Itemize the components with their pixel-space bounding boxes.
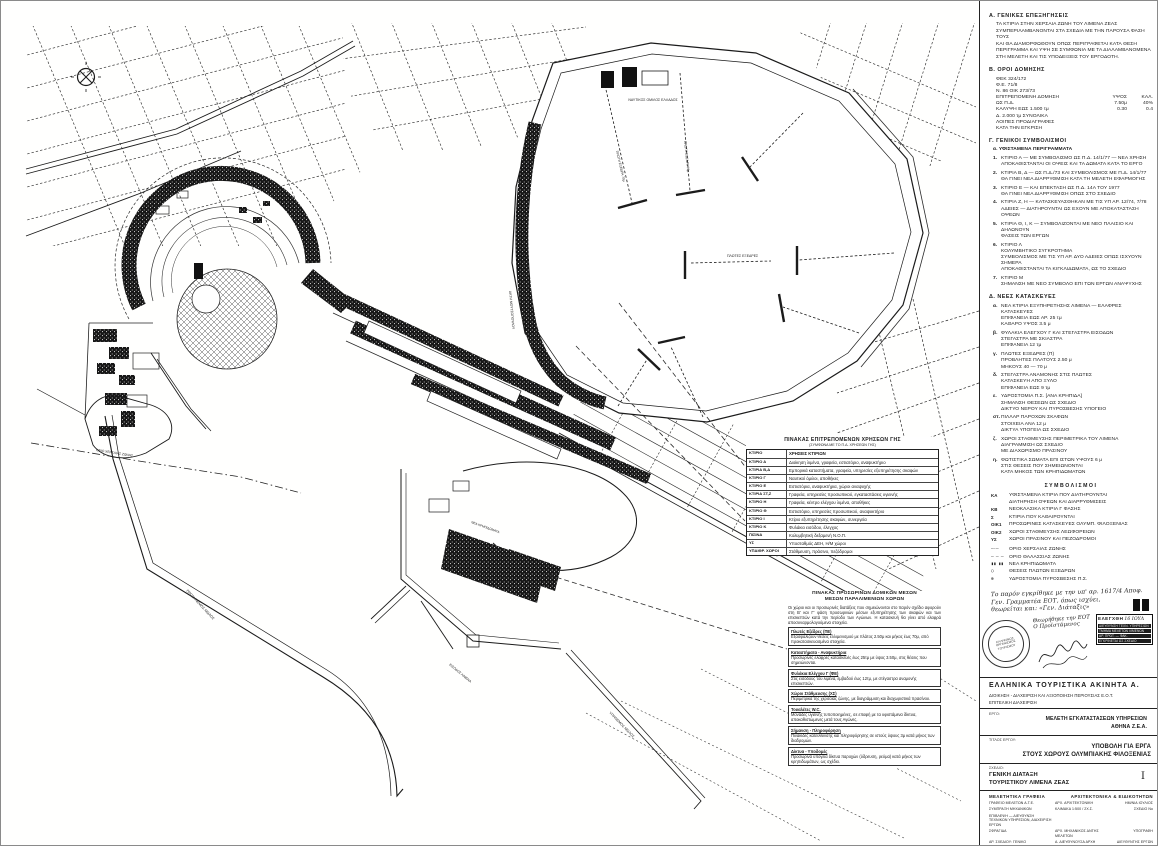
- section-d-heading: Δ. ΝΕΕΣ ΚΑΤΑΣΚΕΥΕΣ: [989, 294, 1153, 301]
- legend-entry: ΚΒ ΝΕΟΚΛΑΣΙΚΑ ΚΤΙΡΙΑ Γ ΦΑΣΗΣ: [991, 507, 1153, 513]
- legend-code: Σ: [991, 515, 1009, 521]
- numbered-note: 7. ΚΤΙΡΙΟ Μ ΣΗΜΑΝΣΗ ΜΕ ΝΕΟ ΣΥΜΒΟΛΟ ΕΠΙ Τ…: [993, 276, 1153, 288]
- firm-col-2: Α. ΔΙΕΥΘΥΝΟΥΣΑ ΑΡΧΗ: [1055, 840, 1110, 845]
- table-row: ΚΤΙΡΙΟ Ε Εστιατόρια, αναψυκτήρια, χώροι …: [747, 482, 938, 490]
- notes-and-titleblock-panel: Α. ΓΕΝΙΚΕΣ ΕΠΕΞΗΓΗΣΕΙΣ ΤΑ ΚΤΙΡΙΑ ΣΤΗΝ ΧΕ…: [979, 1, 1158, 846]
- numbered-note: 2. ΚΤΙΡΙΑ Β, Δ — ΩΣ Π.Δ./73 ΚΑΙ ΣΥΜΒΟΛΙΣ…: [993, 171, 1153, 183]
- note-letter: α.: [993, 304, 1001, 316]
- legend-entry: Σ ΚΤΙΡΙΑ ΠΟΥ ΚΑΘΑΙΡΟΥΝΤΑΙ: [991, 515, 1153, 521]
- lettered-note: στ. ΠΙΛΛΑΡ ΠΑΡΟΧΩΝ ΣΚΑΦΩΝ ΣΤΟΙΧΕΙΑ ΑΝΑ 1…: [993, 415, 1153, 434]
- legend-entry: ΟΙΚ1 ΠΡΟΣΩΡΙΝΕΣ ΚΑΤΑΣΚΕΥΕΣ ΟΛΥΜΠ. ΦΙΛΟΞΕ…: [991, 522, 1153, 528]
- legend-entry: ΥΣ ΧΩΡΟΙ ΠΡΑΣΙΝΟΥ ΚΑΙ ΠΕΖΟΔΡΟΜΟΙ: [991, 537, 1153, 543]
- firm-col-1: ΑΡ. ΣΧΕΔΙΟΥ: ΓΕΝΙΚΟ: [989, 840, 1055, 845]
- building-code: ΚΤΙΡΙΟ Κ: [747, 524, 787, 531]
- legend-entry: ΚΑ ΥΦΙΣΤΑΜΕΝΑ ΚΤΙΡΙΑ ΠΟΥ ΔΙΑΤΗΡΟΥΝΤΑΙ: [991, 493, 1153, 499]
- stamp-row: ΕΓΚΡΙΝΕΤΑΙ ΩΣ ΣΧΕΔΙΟ: [1098, 639, 1151, 643]
- crosshatched-plaza: [177, 269, 277, 369]
- table-row: ΠΙΣΙΝΑ Κολυμβητική δεξαμενή Ν.Ο.Π.: [747, 531, 938, 539]
- small-marina-cove: [371, 462, 637, 649]
- temp-section-body: Προσωρινές ελαφρές κατασκευές έως 25τμ μ…: [791, 655, 938, 665]
- note-number: 2.: [993, 171, 1001, 177]
- note-letter: γ.: [993, 352, 1001, 358]
- firm-col-1: ΣΥΜΠΡΑΞΗ ΜΗΧΑΝΙΚΩΝ: [989, 807, 1055, 812]
- terms-value-2: [1127, 126, 1153, 132]
- map-label: ΑΚΤΗ ΜΟΥΤΣΟΠΟΥΛΟΥ: [508, 291, 515, 330]
- legend-description: ΚΤΙΡΙΑ ΠΟΥ ΚΑΘΑΙΡΟΥΝΤΑΙ: [1009, 515, 1153, 521]
- map-label: ΝΕΑ ΚΡΗΠΙΔΩΜΑΤΑ: [471, 520, 501, 534]
- building-use: Υποσταθμός ΔΕΗ, Η/Μ χώροι: [787, 540, 938, 547]
- building-use: Φυλάκιο εισόδου, έλεγχος: [787, 524, 938, 531]
- col-header-building: ΚΤΙΡΙΟ: [747, 450, 787, 457]
- building-use: Εμπορικά καταστήματα, γραφεία, υπηρεσίες…: [787, 467, 938, 474]
- note-text: ΠΙΛΛΑΡ ΠΑΡΟΧΩΝ ΣΚΑΦΩΝ: [1001, 415, 1068, 421]
- note-text: ΚΤΙΡΙΟ Α — ΜΕ ΣΥΜΒΟΛΙΣΜΟ ΩΣ Π.Δ. 14/1/77…: [1001, 156, 1146, 162]
- building-code: ΚΤΙΡΙΟ Η: [747, 499, 787, 506]
- temp-section-body: Εξασφαλίζουν θέσεις ελλιμενισμού με πλάτ…: [791, 634, 938, 644]
- legend-description: ΝΕΑ ΚΡΗΠΙΔΩΜΑΤΑ: [1009, 562, 1153, 568]
- legend-code: ΚΑ: [991, 493, 1009, 499]
- table-row: ΚΤΙΡΙΟ Κ Φυλάκιο εισόδου, έλεγχος: [747, 523, 938, 531]
- firm-col-3: ΔΙΕΥΘΥΝΤΗΣ ΕΡΓΩΝ: [1110, 840, 1153, 845]
- building-terms-rows: ΦΕΚ 324/172 Φ.Ε. 71/8 Ν. 86 ΟΙΚ 273/73 Ε…: [989, 77, 1153, 133]
- legend-description: ΔΙΑΤΗΡΗΣΗ ΟΨΕΩΝ ΚΑΙ ΔΙΑΡΡΥΘΜΙΣΕΙΣ: [1009, 500, 1153, 506]
- legend-symbol: ⊕: [991, 577, 1009, 583]
- legend-entry: ▮▮ ▮▮ ΝΕΑ ΚΡΗΠΙΔΩΜΑΤΑ: [991, 562, 1153, 568]
- numbered-note: 3. ΚΤΙΡΙΟ Ε — ΚΑΙ ΕΠΕΚΤΑΣΗ ΩΣ Π.Δ. 14Α Τ…: [993, 186, 1153, 198]
- table-row: ΚΤΙΡΙΟ Η Γραφεία, κέντρο ελέγχου λιμένα,…: [747, 498, 938, 506]
- legend-description: ΥΔΡΟΣΤΟΜΙΑ ΠΥΡΟΣΒΕΣΗΣ Π.Σ.: [1009, 577, 1153, 583]
- firms-heading-left: ΜΕΛΕΤΗΤΙΚΑ ΓΡΑΦΕΙΑ: [989, 794, 1045, 800]
- table-row: ΚΤΙΡΙΟ Γ Ναυτικοί όμιλοι, αποθήκες: [747, 474, 938, 482]
- note-text: ΥΔΡΟΣΤΟΜΙΑ Π.Σ. [ΑΝΑ ΚΡΗΠΙΔΑ]: [1001, 394, 1082, 400]
- temp-section: Τουαλέτες W.C. Μονάδες υγιεινής τυποποιη…: [788, 705, 941, 724]
- table-row: ΚΤΙΡΙΑ ΣΤ,Ζ Γραφεία, υπηρεσίες προσωπικο…: [747, 490, 938, 498]
- note-text: ΚΤΙΡΙΑ Β, Δ — ΩΣ Π.Δ./73 ΚΑΙ ΣΥΜΒΟΛΙΣΜΟΣ…: [1001, 171, 1146, 177]
- drawing-title: ΓΕΝΙΚΗ ΔΙΑΤΑΞΗ ΤΟΥΡΙΣΤΙΚΟΥ ΛΙΜΕΝΑ ΖΕΑΣ: [989, 771, 1141, 788]
- project-title-line2: ΣΤΟΥΣ ΧΩΡΟΥΣ ΟΛΥΜΠΙΑΚΗΣ ΦΙΛΟΞΕΝΙΑΣ: [989, 751, 1153, 759]
- legend-code: ΟΙΚ2: [991, 530, 1009, 536]
- building-use: Εστιατόρια, αναψυκτήρια, χώροι αναψυχής: [787, 483, 938, 490]
- legend-entry: ⊕ ΥΔΡΟΣΤΟΜΙΑ ΠΥΡΟΣΒΕΣΗΣ Π.Σ.: [991, 577, 1153, 583]
- section-b-heading: Β. ΟΡΟΙ ΔΟΜΗΣΗΣ: [989, 67, 1153, 74]
- table-row: ΚΤΙΡΙΟ Α Διοίκηση λιμένα, γραφεία, εστια…: [747, 458, 938, 466]
- temp-section-body: Στις εισόδους του λιμένα, εμβαδού έως 12…: [791, 676, 938, 686]
- handwritten-approval-note: Το παρόν εγκρίθηκε με την υπ' αρ. 1617/4…: [991, 587, 1154, 614]
- firm-col-2: [1055, 814, 1110, 828]
- company-name: ΕΛΛΗΝΙΚΑ ΤΟΥΡΙΣΤΙΚΑ ΑΚΙΝΗΤΑ Α.: [989, 682, 1153, 691]
- drawing-title-line2: ΤΟΥΡΙΣΤΙΚΟΥ ΛΙΜΕΝΑ ΖΕΑΣ: [989, 779, 1141, 787]
- note-letter: ε.: [993, 394, 1001, 400]
- lettered-note: δ. ΣΤΕΓΑΣΤΡΑ ΑΝΑΜΟΝΗΣ ΣΤΙΣ ΠΛΩΤΕΣ ΚΑΤΑΣΚ…: [993, 373, 1153, 392]
- legend-description: ΟΡΙΟ ΧΕΡΣΑΙΑΣ ΖΩΝΗΣ: [1009, 547, 1153, 553]
- lettered-note: ε. ΥΔΡΟΣΤΟΜΙΑ Π.Σ. [ΑΝΑ ΚΡΗΠΙΔΑ] ΣΗΜΑΝΣΗ…: [993, 394, 1153, 413]
- note-line: ΠΕΡΙΓΡΑΜΜΑ ΚΑΙ ΥΨΗ ΣΕ ΣΥΜΦΩΝΙΑ ΜΕ ΤΑ ΔΙΑ…: [996, 48, 1153, 54]
- sheet-number: Ι: [1141, 771, 1153, 784]
- legend-code: ΟΙΚ1: [991, 522, 1009, 528]
- note-text: ΦΩΤΙΣΤΙΚΑ ΣΩΜΑΤΑ ΕΠΙ ΙΣΤΩΝ ΥΨΟΥΣ 6 μ: [1001, 458, 1102, 464]
- firm-row: ΓΡΑΦΕΙΟ ΜΕΛΕΤΩΝ Α.Τ.Ε. ΑΡΧ. ΑΡΧΙΤΕΚΤΟΝΙΚ…: [989, 801, 1153, 806]
- note-text: ΚΤΙΡΙΟ Ε — ΚΑΙ ΕΠΕΚΤΑΣΗ ΩΣ Π.Δ. 14Α ΤΟΥ …: [1001, 186, 1120, 192]
- note-line: ΣΤΗ ΜΕΛΕΤΗ ΚΑΙ ΤΙΣ ΥΠΟΔΕΙΞΕΙΣ ΤΟΥ ΕΡΓΟΔΟ…: [996, 55, 1153, 61]
- building-use: Γραφεία, κέντρο ελέγχου λιμένα, αποθήκες: [787, 499, 938, 506]
- note-text: ΦΑΣΕΙΣ ΤΩΝ ΕΡΓΩΝ: [1001, 234, 1153, 240]
- legend-description: ΝΕΟΚΛΑΣΙΚΑ ΚΤΙΡΙΑ Γ ΦΑΣΗΣ: [1009, 507, 1153, 513]
- building-code: ΚΤΙΡΙΟ Γ: [747, 475, 787, 482]
- building-code: ΠΙΣΙΝΑ: [747, 532, 787, 539]
- stamp-row: ΤΜΗΜΑ ΜΕΛΕΤΩΝ ΛΙΜΕΝΩΝ: [1098, 629, 1151, 633]
- firm-row: ΣΥΜΠΡΑΞΗ ΜΗΧΑΝΙΚΩΝ ΚΛΙΜΑΚΑ 1:500 / 2Χ.Σ.…: [989, 807, 1153, 812]
- building-code: ΚΤΙΡΙΑ Β,Δ: [747, 467, 787, 474]
- legend-entry: – – – ΟΡΙΟ ΘΑΛΑΣΣΙΑΣ ΖΩΝΗΣ: [991, 555, 1153, 561]
- firm-col-1: ΕΠΙΒΛΕΨΗ — ΔΙΕΥΘΥΝΣΗ ΤΕΧΝΙΚΩΝ ΥΠΗΡΕΣΙΩΝ,…: [989, 814, 1055, 828]
- firm-col-3: [1110, 814, 1153, 828]
- firm-col-3: ΣΧΕΔΙΟ Νο: [1110, 807, 1153, 812]
- stamp-title: ΕΛΕΓΧΘΗ: [1098, 616, 1123, 621]
- table-row: ΚΤΙΡΙΟ Θ Εστιατόριο, υπηρεσίες προσωπικο…: [747, 507, 938, 515]
- round-stamp-text: ΕΛΛΗΝΙΚΟΣ ΟΡΓΑΝΙΣΜΟΣ ΤΟΥΡΙΣΜΟΥ: [984, 623, 1028, 667]
- scattered-small-buildings: [156, 191, 270, 223]
- section-c-subheading: α. ΥΦΙΣΤΑΜΕΝΑ ΠΕΡΙΓΡΑΜΜΑΤΑ: [993, 147, 1153, 153]
- lee-breakwater: [566, 650, 705, 809]
- note-text: ΜΗΚΟΥΣ 40 — 70 μ: [1001, 365, 1153, 371]
- lettered-note: η. ΦΩΤΙΣΤΙΚΑ ΣΩΜΑΤΑ ΕΠΙ ΙΣΤΩΝ ΥΨΟΥΣ 6 μ …: [993, 458, 1153, 477]
- numbered-note: 5. ΚΤΙΡΙΑ Θ, Ι, Κ — ΣΥΜΒΟΛΙΖΟΝΤΑΙ ΜΕ ΝΕΟ…: [993, 222, 1153, 241]
- terms-label: ΚΑΤΑ ΤΗΝ ΕΓΚΡΙΣΗ: [996, 126, 1101, 132]
- temp-section: Δίκτυα - Υποδομές Προσωρινά υπόγεια δίκτ…: [788, 747, 941, 766]
- note-text: ΘΑ ΓΙΝΕΙ ΝΕΑ ΔΙΑΡΡΥΘΜΙΣΗ ΟΠΩΣ ΣΤΟ ΣΧΕΔΙΟ: [1001, 192, 1153, 198]
- temp-section: Φυλάκια Ελέγχου Γ (ΦΕ) Στις εισόδους του…: [788, 669, 941, 688]
- temporary-structures-table: ΠΙΝΑΚΑΣ ΠΡΟΣΩΡΙΝΩΝ ΔΟΜΙΚΩΝ ΜΕΣΩΝ ΜΕΣΩΝ Π…: [788, 591, 941, 768]
- legend-symbol: —·—: [991, 547, 1009, 553]
- map-label: ΕΙΣΟΔΟΣ ΛΙΜΕΝΑ: [448, 663, 472, 684]
- note-letter: στ.: [993, 415, 1001, 421]
- table-row: ΚΤΙΡΙΟ Ι Κτίριο εξυπηρέτησης σκαφών, συν…: [747, 515, 938, 523]
- lettered-note: ζ. ΧΩΡΟΙ ΣΤΑΘΜΕΥΣΗΣ ΠΕΡΙΜΕΤΡΙΚΑ ΤΟΥ ΛΙΜΕ…: [993, 437, 1153, 456]
- stamp-row: ΑΡ. ΠΡΩΤ. — ΦΑΚ.: [1098, 634, 1151, 638]
- legend-code: [991, 500, 1009, 506]
- titleblock-divider: [980, 677, 1158, 678]
- table-row: ΚΤΙΡΙΑ Β,Δ Εμπορικά καταστήματα, γραφεία…: [747, 466, 938, 474]
- firms-heading-right: ΑΡΧΙΤΕΚΤΟΝΙΚΑ & ΕΙΔΙΚΟΤΗΤΩΝ: [1071, 794, 1153, 800]
- building-use: Ναυτικοί όμιλοι, αποθήκες: [787, 475, 938, 482]
- temp-section: Σήμανση - Πληροφόρηση Πινακίδες κατεύθυν…: [788, 726, 941, 745]
- building-use: Γραφεία, υπηρεσίες προσωπικού, εγκαταστά…: [787, 491, 938, 498]
- note-text: ΚΤΙΡΙΟ Λ: [1001, 243, 1022, 249]
- firm-col-3: ΥΠΟΓΡΑΦΗ: [1110, 829, 1153, 838]
- note-text: ΚΑΘΑΡΟ ΥΨΟΣ 3.5 μ: [1001, 322, 1153, 328]
- note-text: ΕΠΙΦΑΝΕΙΑ 12 τμ: [1001, 343, 1153, 349]
- round-official-stamp-icon: ΕΛΛΗΝΙΚΟΣ ΟΡΓΑΝΙΣΜΟΣ ΤΟΥΡΙΣΜΟΥ: [982, 620, 1030, 668]
- building-code: ΚΤΙΡΙΟ Ι: [747, 516, 787, 523]
- lettered-note: β. ΦΥΛΑΚΙΑ ΕΛΕΓΧΟΥ Γ ΚΑΙ ΣΤΕΓΑΣΤΡΑ ΕΙΣΟΔ…: [993, 331, 1153, 350]
- note-number: 5.: [993, 222, 1001, 234]
- scanned-site-plan-sheet: ΝΑΥΤΙΚΟΣ ΟΜΙΛΟΣ ΕΛΛΑΔΟΣ ΠΛΩΤΗ ΕΞΕΔΡΑ 70μ…: [0, 0, 1158, 846]
- stamp-rows: ΔΙΕΥΘΥΝΣΗ ΤΕΧΝ. ΥΠΗΡΕΣΙΩΝΤΜΗΜΑ ΜΕΛΕΤΩΝ Λ…: [1098, 624, 1151, 643]
- temp-section: Πλωτές Εξέδρες (ΠΕ) Εξασφαλίζουν θέσεις …: [788, 627, 941, 646]
- stamp-row: ΔΙΕΥΘΥΝΣΗ ΤΕΧΝ. ΥΠΗΡΕΣΙΩΝ: [1098, 624, 1151, 628]
- building-code: ΥΣ: [747, 540, 787, 547]
- table-row: ΥΠΑΙΘΡ. ΧΩΡΟΙ Στάθμευση, πράσινο, πεζόδρ…: [747, 547, 938, 555]
- building-code: ΚΤΙΡΙΟ Α: [747, 459, 787, 466]
- firm-col-2: ΑΡΧ. ΜΗΧΑΝΙΚΟΣ ΔΝΤΗΣ ΜΕΛΕΤΩΝ: [1055, 829, 1110, 838]
- firm-row: ΣΦΡΑΓΙΔΑ ΑΡΧ. ΜΗΧΑΝΙΚΟΣ ΔΝΤΗΣ ΜΕΛΕΤΩΝ ΥΠ…: [989, 829, 1153, 838]
- legend-code-entries: ΚΑ ΥΦΙΣΤΑΜΕΝΑ ΚΤΙΡΙΑ ΠΟΥ ΔΙΑΤΗΡΟΥΝΤΑΙ ΔΙ…: [989, 493, 1153, 543]
- signature-icon: [1037, 636, 1089, 672]
- study-title-line1: ΜΕΛΕΤΗ ΕΓΚΑΤΑΣΤΑΣΕΩΝ ΥΠΗΡΕΣΙΩΝ: [989, 716, 1153, 724]
- note-text: ΔΙΚΤΥΑ ΥΠΟΓΕΙΑ ΩΣ ΣΧΕΔΙΟ: [1001, 428, 1153, 434]
- harbor-basin: [512, 43, 929, 422]
- handwritten-endorsement: Θεωρήθηκε την ΕΟΤ Ο Προϊστάμενος: [1033, 614, 1100, 632]
- note-text: ΜΕ ΔΙΑΧΩΡΙΣΜΟ ΠΡΑΣΙΝΟΥ: [1001, 449, 1153, 455]
- legend-entry: ΔΙΑΤΗΡΗΣΗ ΟΨΕΩΝ ΚΑΙ ΔΙΑΡΡΥΘΜΙΣΕΙΣ: [991, 500, 1153, 506]
- registry-mark: [1133, 599, 1149, 611]
- legend-description: ΧΩΡΟΙ ΣΤΑΘΜΕΥΣΗΣ ΛΕΩΦΟΡΕΙΩΝ: [1009, 530, 1153, 536]
- note-number: 4.: [993, 200, 1001, 206]
- note-line: ΣΥΜΠΕΡΙΛΑΜΒΑΝΟΝΤΑΙ ΣΤΑ ΣΧΕΔΙΑ ΜΕ ΤΗΝ ΠΑΡ…: [996, 29, 1153, 41]
- note-text: ΚΤΙΡΙΑ Ζ, Η — ΚΑΤΑΣΚΕΥΑΣΘΗΚΑΝ ΜΕ ΤΙΣ ΥΠ …: [1001, 200, 1147, 206]
- terms-row: ΚΑΤΑ ΤΗΝ ΕΓΚΡΙΣΗ: [996, 126, 1153, 132]
- building-use: Εστιατόριο, υπηρεσίες προσωπικού, αναψυκ…: [787, 508, 938, 515]
- section-d-items: α. ΝΕΑ ΚΤΙΡΙΑ ΕΞΥΠΗΡΕΤΗΣΗΣ ΛΙΜΕΝΑ — ΕΛΑΦ…: [989, 304, 1153, 476]
- legend-entry: ○ ΘΕΣΕΙΣ ΠΛΩΤΩΝ ΕΞΕΔΡΩΝ: [991, 569, 1153, 575]
- note-number: 1.: [993, 156, 1001, 162]
- building-use: Κολυμβητική δεξαμενή Ν.Ο.Π.: [787, 532, 938, 539]
- temp-table-sections: Πλωτές Εξέδρες (ΠΕ) Εξασφαλίζουν θέσεις …: [788, 627, 941, 767]
- note-text: ΝΕΑ ΚΤΙΡΙΑ ΕΞΥΠΗΡΕΤΗΣΗΣ ΛΙΜΕΝΑ — ΕΛΑΦΡΕΣ…: [1001, 304, 1153, 316]
- section-c-heading: Γ. ΓΕΝΙΚΟΙ ΣΥΜΒΟΛΙΣΜΟΙ: [989, 138, 1153, 145]
- building-use: Διοίκηση λιμένα, γραφεία, εστιατόριο, αν…: [787, 459, 938, 466]
- temp-section: Χώροι Στάθμευσης (ΧΣ) Περιμετρικά της χε…: [788, 689, 941, 703]
- stamps-and-signatures: ΕΛΛΗΝΙΚΟΣ ΟΡΓΑΝΙΣΜΟΣ ΤΟΥΡΙΣΜΟΥ Θεωρήθηκε…: [989, 614, 1153, 674]
- legend-description: ΧΩΡΟΙ ΠΡΑΣΙΝΟΥ ΚΑΙ ΠΕΖΟΔΡΟΜΟΙ: [1009, 537, 1153, 543]
- building-use: Στάθμευση, πράσινο, πεζόδρομοι: [787, 548, 938, 555]
- table-row: ΥΣ Υποσταθμός ΔΕΗ, Η/Μ χώροι: [747, 539, 938, 547]
- note-text: ΣΗΜΑΝΣΗ ΜΕ ΝΕΟ ΣΥΜΒΟΛΟ ΕΠΙ ΤΩΝ ΕΡΓΩΝ ΑΝΑ…: [1001, 282, 1153, 288]
- drawing-title-line1: ΓΕΝΙΚΗ ΔΙΑΤΑΞΗ: [989, 771, 1141, 779]
- building-code: ΚΤΙΡΙΟ Ε: [747, 483, 787, 490]
- note-letter: ζ.: [993, 437, 1001, 443]
- legend-symbol: ○: [991, 569, 1009, 575]
- firm-col-1: ΣΦΡΑΓΙΔΑ: [989, 829, 1055, 838]
- map-label: ΠΡΟΣΗΝΕΜΟΣ ΜΩΛΟΣ: [185, 589, 215, 621]
- temp-section-body: Περιμετρικά της χερσαίας ζώνης, με διαγρ…: [791, 696, 938, 701]
- legend-code: ΚΒ: [991, 507, 1009, 513]
- legend-heading: ΣΥΜΒΟΛΙΣΜΟΙ: [989, 483, 1153, 490]
- note-text: ΚΤΙΡΙΑ Θ, Ι, Κ — ΣΥΜΒΟΛΙΖΟΝΤΑΙ ΜΕ ΝΕΟ ΠΛ…: [1001, 222, 1153, 234]
- temp-table-title2: ΜΕΣΩΝ ΠΑΡΑΛΙΜΕΝΙΩΝ ΧΩΡΩΝ: [788, 597, 941, 603]
- stamp-date: 16 ΙΟΥΛ: [1124, 617, 1144, 622]
- firm-col-2: ΚΛΙΜΑΚΑ 1:500 / 2Χ.Σ.: [1055, 807, 1110, 812]
- outer-breakwater: [37, 389, 403, 796]
- firm-rows: ΓΡΑΦΕΙΟ ΜΕΛΕΤΩΝ Α.Τ.Ε. ΑΡΧ. ΑΡΧΙΤΕΚΤΟΝΙΚ…: [989, 801, 1153, 845]
- legend-description: ΠΡΟΣΩΡΙΝΕΣ ΚΑΤΑΣΚΕΥΕΣ ΟΛΥΜΠ. ΦΙΛΟΞΕΝΙΑΣ: [1009, 522, 1153, 528]
- note-text: ΧΩΡΟΙ ΣΤΑΘΜΕΥΣΗΣ ΠΕΡΙΜΕΤΡΙΚΑ ΤΟΥ ΛΙΜΕΝΑ: [1001, 437, 1118, 443]
- amphitheater-complex: [115, 158, 353, 369]
- firm-row: ΑΡ. ΣΧΕΔΙΟΥ: ΓΕΝΙΚΟ Α. ΔΙΕΥΘΥΝΟΥΣΑ ΑΡΧΗ …: [989, 840, 1153, 845]
- main-avenues-upper-left: [26, 41, 355, 236]
- legend-description: ΥΦΙΣΤΑΜΕΝΑ ΚΤΙΡΙΑ ΠΟΥ ΔΙΑΤΗΡΟΥΝΤΑΙ: [1009, 493, 1153, 499]
- building-use: Κτίριο εξυπηρέτησης σκαφών, συνεργεία: [787, 516, 938, 523]
- firm-col-2: ΑΡΧ. ΑΡΧΙΤΕΚΤΟΝΙΚΗ: [1055, 801, 1110, 806]
- numbered-note: 1. ΚΤΙΡΙΟ Α — ΜΕ ΣΥΜΒΟΛΙΣΜΟ ΩΣ Π.Δ. 14/1…: [993, 156, 1153, 168]
- company-subtitle-2: ΕΠΙΤΕΛΙΚΗ ΔΙΑΧΕΙΡΙΣΗ: [989, 700, 1153, 705]
- legend-entry: ΟΙΚ2 ΧΩΡΟΙ ΣΤΑΘΜΕΥΣΗΣ ΛΕΩΦΟΡΕΙΩΝ: [991, 530, 1153, 536]
- note-text: ΑΠΟΚΑΘΙΣΤΑΝΤΑΙ ΟΙ ΟΨΕΙΣ ΚΑΙ ΤΑ ΔΩΜΑΤΑ ΚΑ…: [1001, 162, 1153, 168]
- note-text: ΘΑ ΓΙΝΕΙ ΝΕΑ ΔΙΑΡΡΥΘΜΙΣΗ ΚΑΤΑ ΤΗ ΜΕΛΕΤΗ …: [1001, 177, 1153, 183]
- section-a-heading: Α. ΓΕΝΙΚΕΣ ΕΠΕΞΗΓΗΣΕΙΣ: [989, 13, 1153, 20]
- land-use-rows: ΚΤΙΡΙΟ Α Διοίκηση λιμένα, γραφεία, εστια…: [747, 458, 938, 556]
- map-label: ΝΑΥΤΙΚΟΣ ΟΜΙΛΟΣ ΕΛΛΑΔΟΣ: [628, 98, 678, 102]
- basin-outer-rim: [512, 43, 923, 422]
- building-code: ΥΠΑΙΘΡ. ΧΩΡΟΙ: [747, 548, 787, 555]
- legend-symbol: ▮▮ ▮▮: [991, 562, 1009, 568]
- stage-building: [194, 263, 203, 279]
- note-number: 3.: [993, 186, 1001, 192]
- legend-symbol: – – –: [991, 555, 1009, 561]
- note-line: ΤΑ ΚΤΙΡΙΑ ΣΤΗΝ ΧΕΡΣΑΙΑ ΖΩΝΗ ΤΟΥ ΛΙΜΕΝΑ Ζ…: [996, 22, 1153, 28]
- note-number: 7.: [993, 276, 1001, 282]
- note-text: ΔΙΚΤΥΟ ΝΕΡΟΥ ΚΑΙ ΠΥΡΟΣΒΕΣΗΣ ΥΠΟΓΕΙΟ: [1001, 407, 1153, 413]
- note-text: ΑΔΕΙΕΣ — ΔΙΑΤΗΡΟΥΝΤΑΙ ΩΣ ΕΧΟΥΝ ΜΕ ΑΠΟΚΑΤ…: [1001, 207, 1153, 219]
- temp-section-body: Πινακίδες κατεύθυνσης και πληροφόρησης σ…: [791, 733, 938, 743]
- map-label: ΠΛΩΤΕΣ ΕΞΕΔΡΕΣ: [727, 254, 759, 258]
- rectangular-approval-stamp: ΕΛΕΓΧΘΗ 16 ΙΟΥΛ ΔΙΕΥΘΥΝΣΗ ΤΕΧΝ. ΥΠΗΡΕΣΙΩ…: [1096, 614, 1153, 645]
- legend-code: ΥΣ: [991, 537, 1009, 543]
- firm-row: ΕΠΙΒΛΕΨΗ — ΔΙΕΥΘΥΝΣΗ ΤΕΧΝΙΚΩΝ ΥΠΗΡΕΣΙΩΝ,…: [989, 814, 1153, 828]
- land-use-header-row: ΚΤΙΡΙΟ ΧΡΗΣΕΙΣ ΚΤΙΡΙΩΝ: [747, 450, 938, 457]
- col-header-uses: ΧΡΗΣΕΙΣ ΚΤΙΡΙΩΝ: [787, 450, 938, 457]
- note-text: ΚΑΤΑ ΜΗΚΟΣ ΤΩΝ ΚΡΗΠΙΔΩΜΑΤΩΝ: [1001, 470, 1153, 476]
- legend-description: ΘΕΣΕΙΣ ΠΛΩΤΩΝ ΕΞΕΔΡΩΝ: [1009, 569, 1153, 575]
- legend-symbol-entries: —·— ΟΡΙΟ ΧΕΡΣΑΙΑΣ ΖΩΝΗΣ – – – ΟΡΙΟ ΘΑΛΑΣ…: [989, 547, 1153, 583]
- legend-entry: —·— ΟΡΙΟ ΧΕΡΣΑΙΑΣ ΖΩΝΗΣ: [991, 547, 1153, 553]
- note-letter: β.: [993, 331, 1001, 337]
- project-title-line1: ΥΠΟΒΟΛΗ ΓΙΑ ΕΡΓΑ: [989, 743, 1153, 751]
- zone-boundary-line: [31, 443, 301, 493]
- lettered-note: γ. ΠΛΩΤΕΣ ΕΞΕΔΡΕΣ (Π) ΠΡΟΒΛΗΤΕΣ ΠΛΑΤΟΥΣ …: [993, 352, 1153, 371]
- lettered-note: α. ΝΕΑ ΚΤΙΡΙΑ ΕΞΥΠΗΡΕΤΗΣΗΣ ΛΙΜΕΝΑ — ΕΛΑΦ…: [993, 304, 1153, 329]
- temp-table-intro: Οι χώροι και οι προσωρινές διατάξεις που…: [788, 605, 941, 625]
- temp-section: Καταστήματα - Αναψυκτήρια Προσωρινές ελα…: [788, 648, 941, 667]
- note-text: ΑΠΟΚΑΘΙΣΤΑΝΤΑΙ ΤΑ ΚΙΓΚΛΙΔΩΜΑΤΑ, ΩΣ ΤΟ ΣΧ…: [1001, 267, 1153, 273]
- land-use-table-subtitle: (ΣΥΜΦΩΝΑ ΜΕ ΤΟ Π.Δ. ΧΡΗΣΕΩΝ ΓΗΣ): [746, 443, 939, 447]
- study-title-line2: ΑΘΗΝΑ Ζ.Ε.Α.: [989, 724, 1153, 732]
- numbered-note: 4. ΚΤΙΡΙΑ Ζ, Η — ΚΑΤΑΣΚΕΥΑΣΘΗΚΑΝ ΜΕ ΤΙΣ …: [993, 200, 1153, 219]
- section-a-paragraph: ΤΑ ΚΤΙΡΙΑ ΣΤΗΝ ΧΕΡΣΑΙΑ ΖΩΝΗ ΤΟΥ ΛΙΜΕΝΑ Ζ…: [989, 22, 1153, 61]
- section-c-items: 1. ΚΤΙΡΙΟ Α — ΜΕ ΣΥΜΒΟΛΙΣΜΟ ΩΣ Π.Δ. 14/1…: [989, 156, 1153, 289]
- numbered-note: 6. ΚΤΙΡΙΟ Λ ΚΟΛΥΜΒΗΤΙΚΟ ΣΥΓΚΡΟΤΗΜΑ ΣΥΜΒΟ…: [993, 243, 1153, 274]
- terms-value-1: [1101, 126, 1127, 132]
- note-text: ΕΠΙΦΑΝΕΙΑ ΕΩΣ 9 τμ: [1001, 386, 1153, 392]
- legend-description: ΟΡΙΟ ΘΑΛΑΣΣΙΑΣ ΖΩΝΗΣ: [1009, 555, 1153, 561]
- note-text: ΣΥΜΒΟΛΙΣΜΟΣ ΜΕ ΤΙΣ ΥΠ ΑΡ. ΔΥΟ ΑΔΕΙΕΣ ΟΠΩ…: [1001, 255, 1153, 267]
- company-subtitle-1: ΔΙΟΙΚΗΣΗ - ΔΙΑΧΕΙΡΙΣΗ ΚΑΙ ΑΞΙΟΠΟΙΗΣΗ ΠΕΡ…: [989, 693, 1153, 698]
- temp-section-body: Προσωρινά υπόγεια δίκτυα παροχών (ύδρευσ…: [791, 754, 938, 764]
- firm-col-3: ΗΜ/ΝΙΑ ΙΟΥΛΙΟΣ: [1110, 801, 1153, 806]
- note-letter: δ.: [993, 373, 1001, 379]
- firm-col-1: ΓΡΑΦΕΙΟ ΜΕΛΕΤΩΝ Α.Τ.Ε.: [989, 801, 1055, 806]
- land-use-table: ΠΙΝΑΚΑΣ ΕΠΙΤΡΕΠΟΜΕΝΩΝ ΧΡΗΣΕΩΝ ΓΗΣ (ΣΥΜΦΩ…: [746, 437, 939, 556]
- temp-section-body: Μονάδες υγιεινής τυποποιημένες, σε επαφή…: [791, 712, 938, 722]
- note-letter: η.: [993, 458, 1001, 464]
- building-code: ΚΤΙΡΙΟ Θ: [747, 508, 787, 515]
- building-code: ΚΤΙΡΙΑ ΣΤ,Ζ: [747, 491, 787, 498]
- note-number: 6.: [993, 243, 1001, 249]
